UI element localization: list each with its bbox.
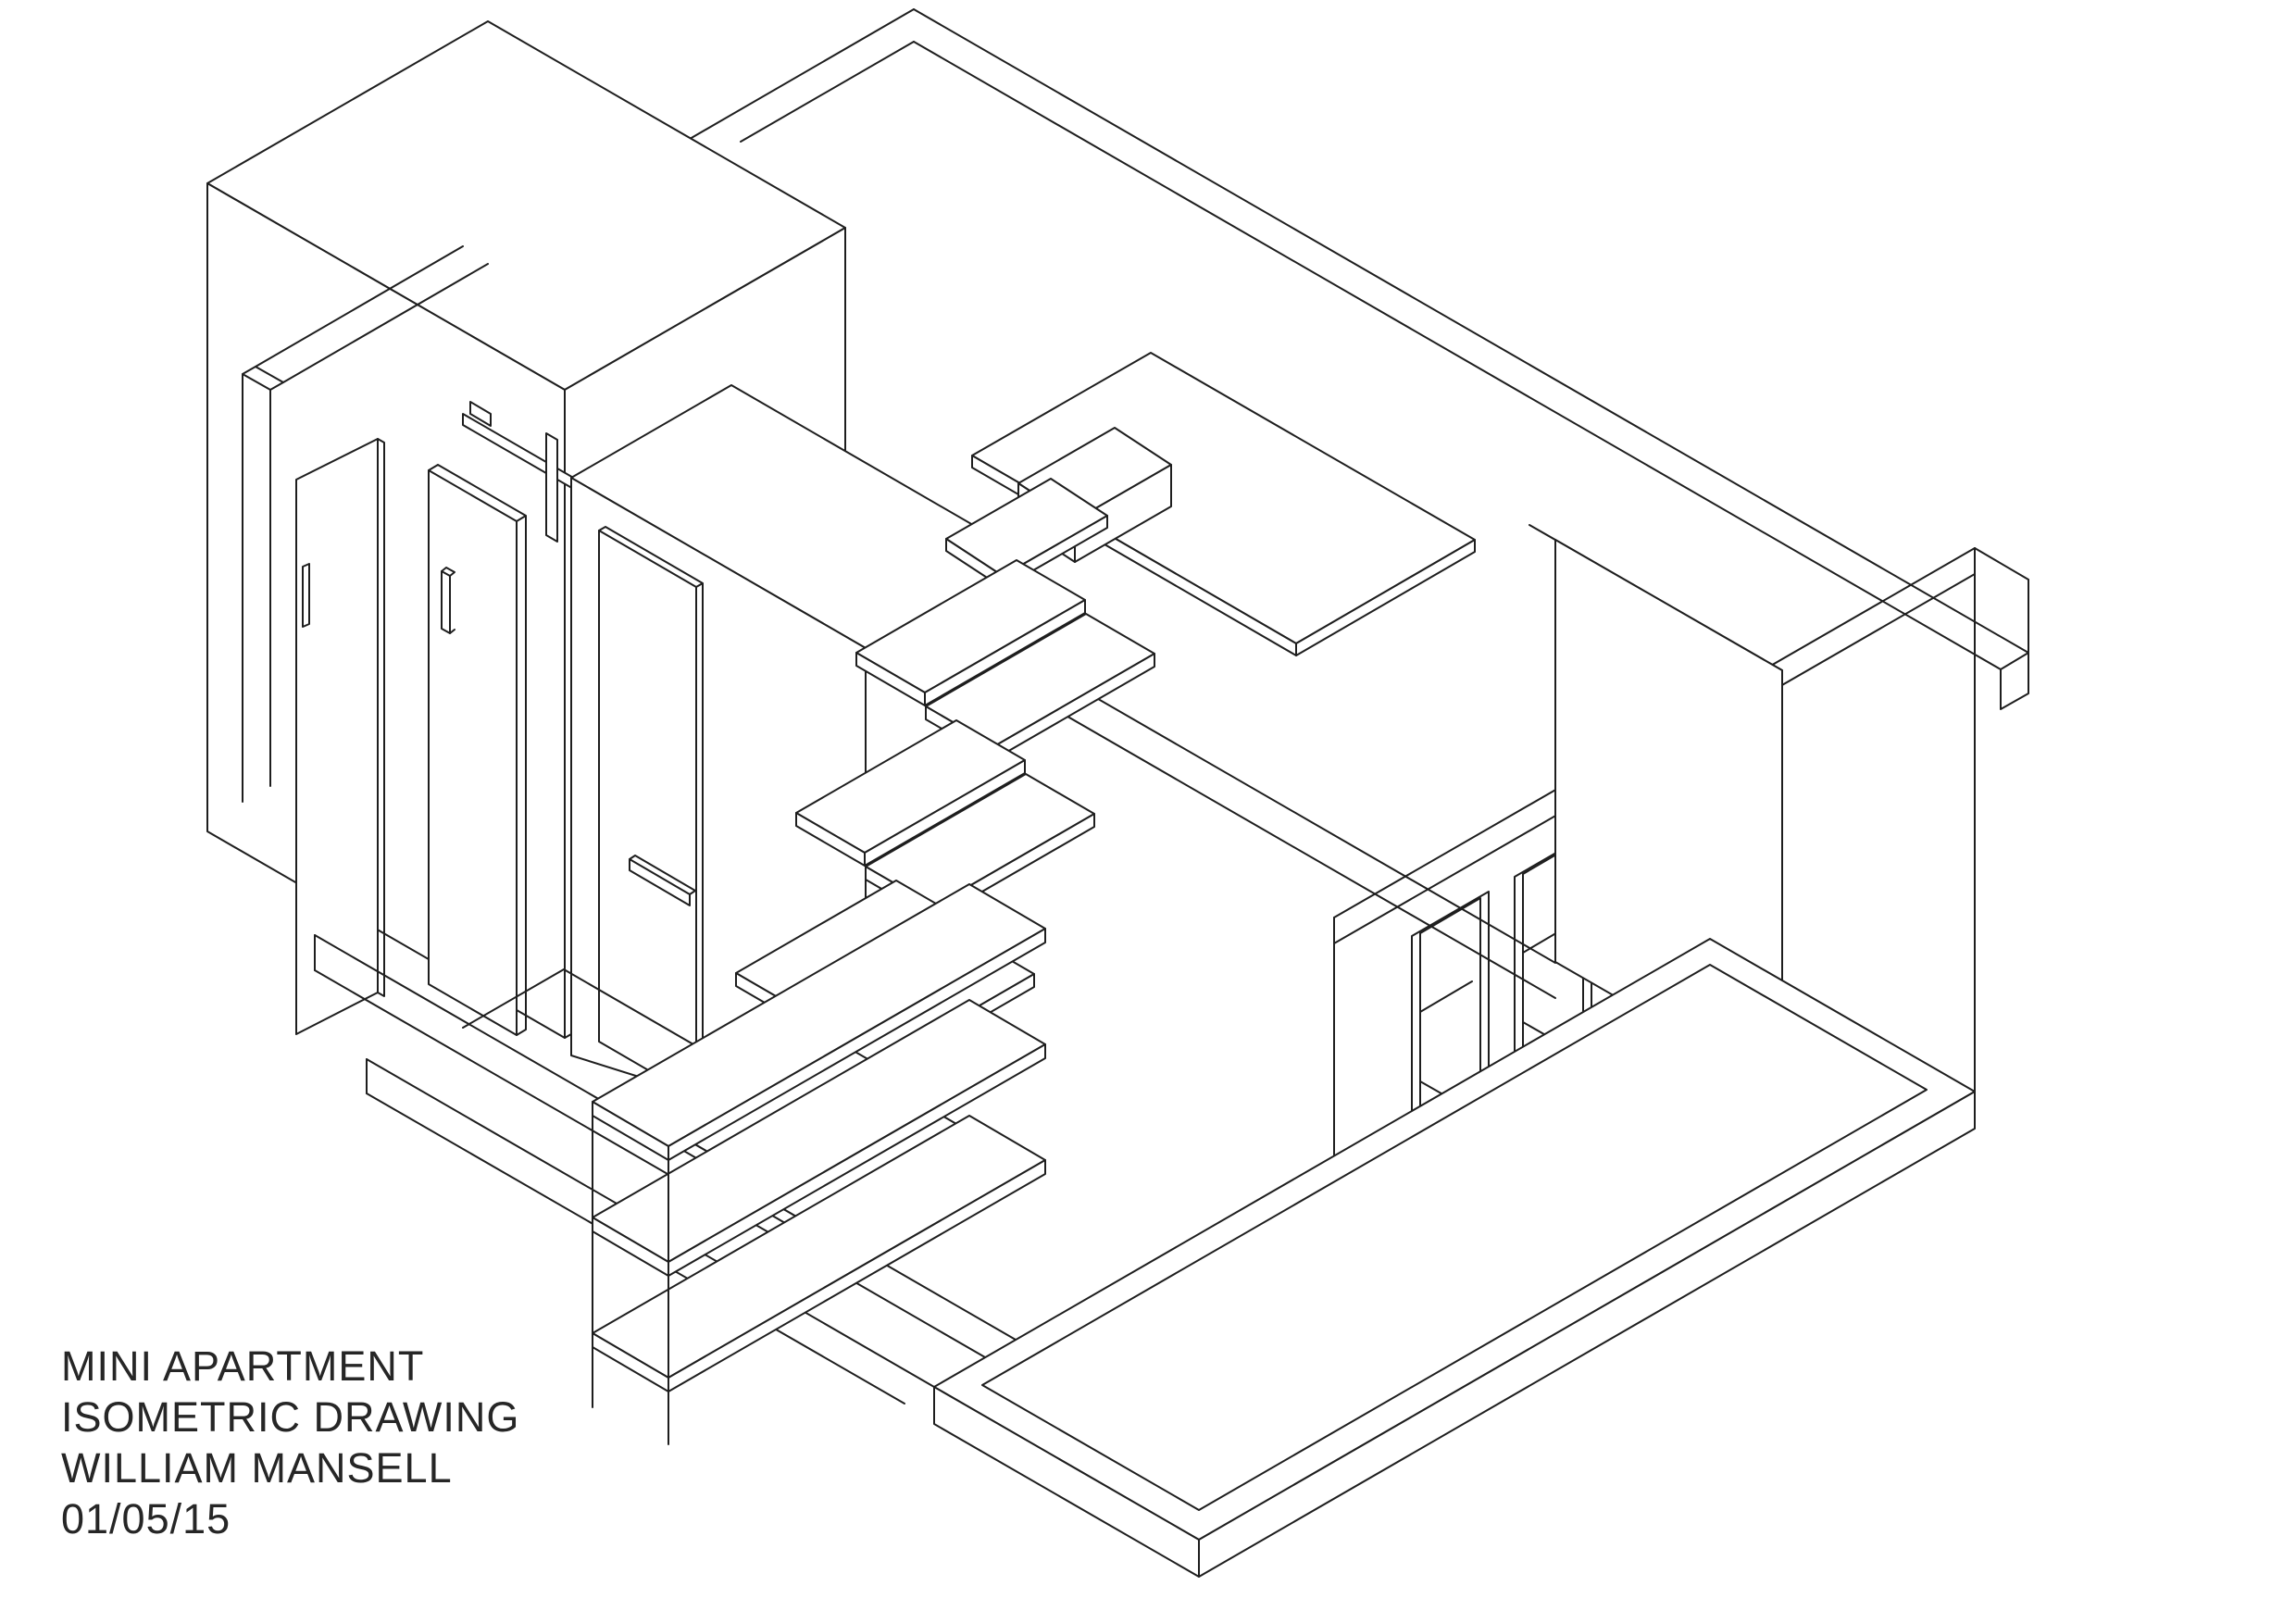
back-left-wall — [690, 9, 914, 142]
entry-door-handle — [303, 564, 309, 627]
drawing-date: 01/05/15 — [61, 1493, 519, 1544]
drawing-title: MINI APARTMENT — [61, 1341, 519, 1392]
drawing-subtitle: ISOMETRIC DRAWING — [61, 1392, 519, 1442]
sliding-door — [429, 465, 526, 1035]
drawing-sheet: MINI APARTMENT ISOMETRIC DRAWING WILLIAM… — [0, 0, 2296, 1623]
drawing-author: WILLIAM MANSELL — [61, 1442, 519, 1493]
entry-door — [296, 439, 384, 1034]
title-block: MINI APARTMENT ISOMETRIC DRAWING WILLIAM… — [61, 1341, 519, 1544]
closet-door — [599, 527, 703, 1098]
